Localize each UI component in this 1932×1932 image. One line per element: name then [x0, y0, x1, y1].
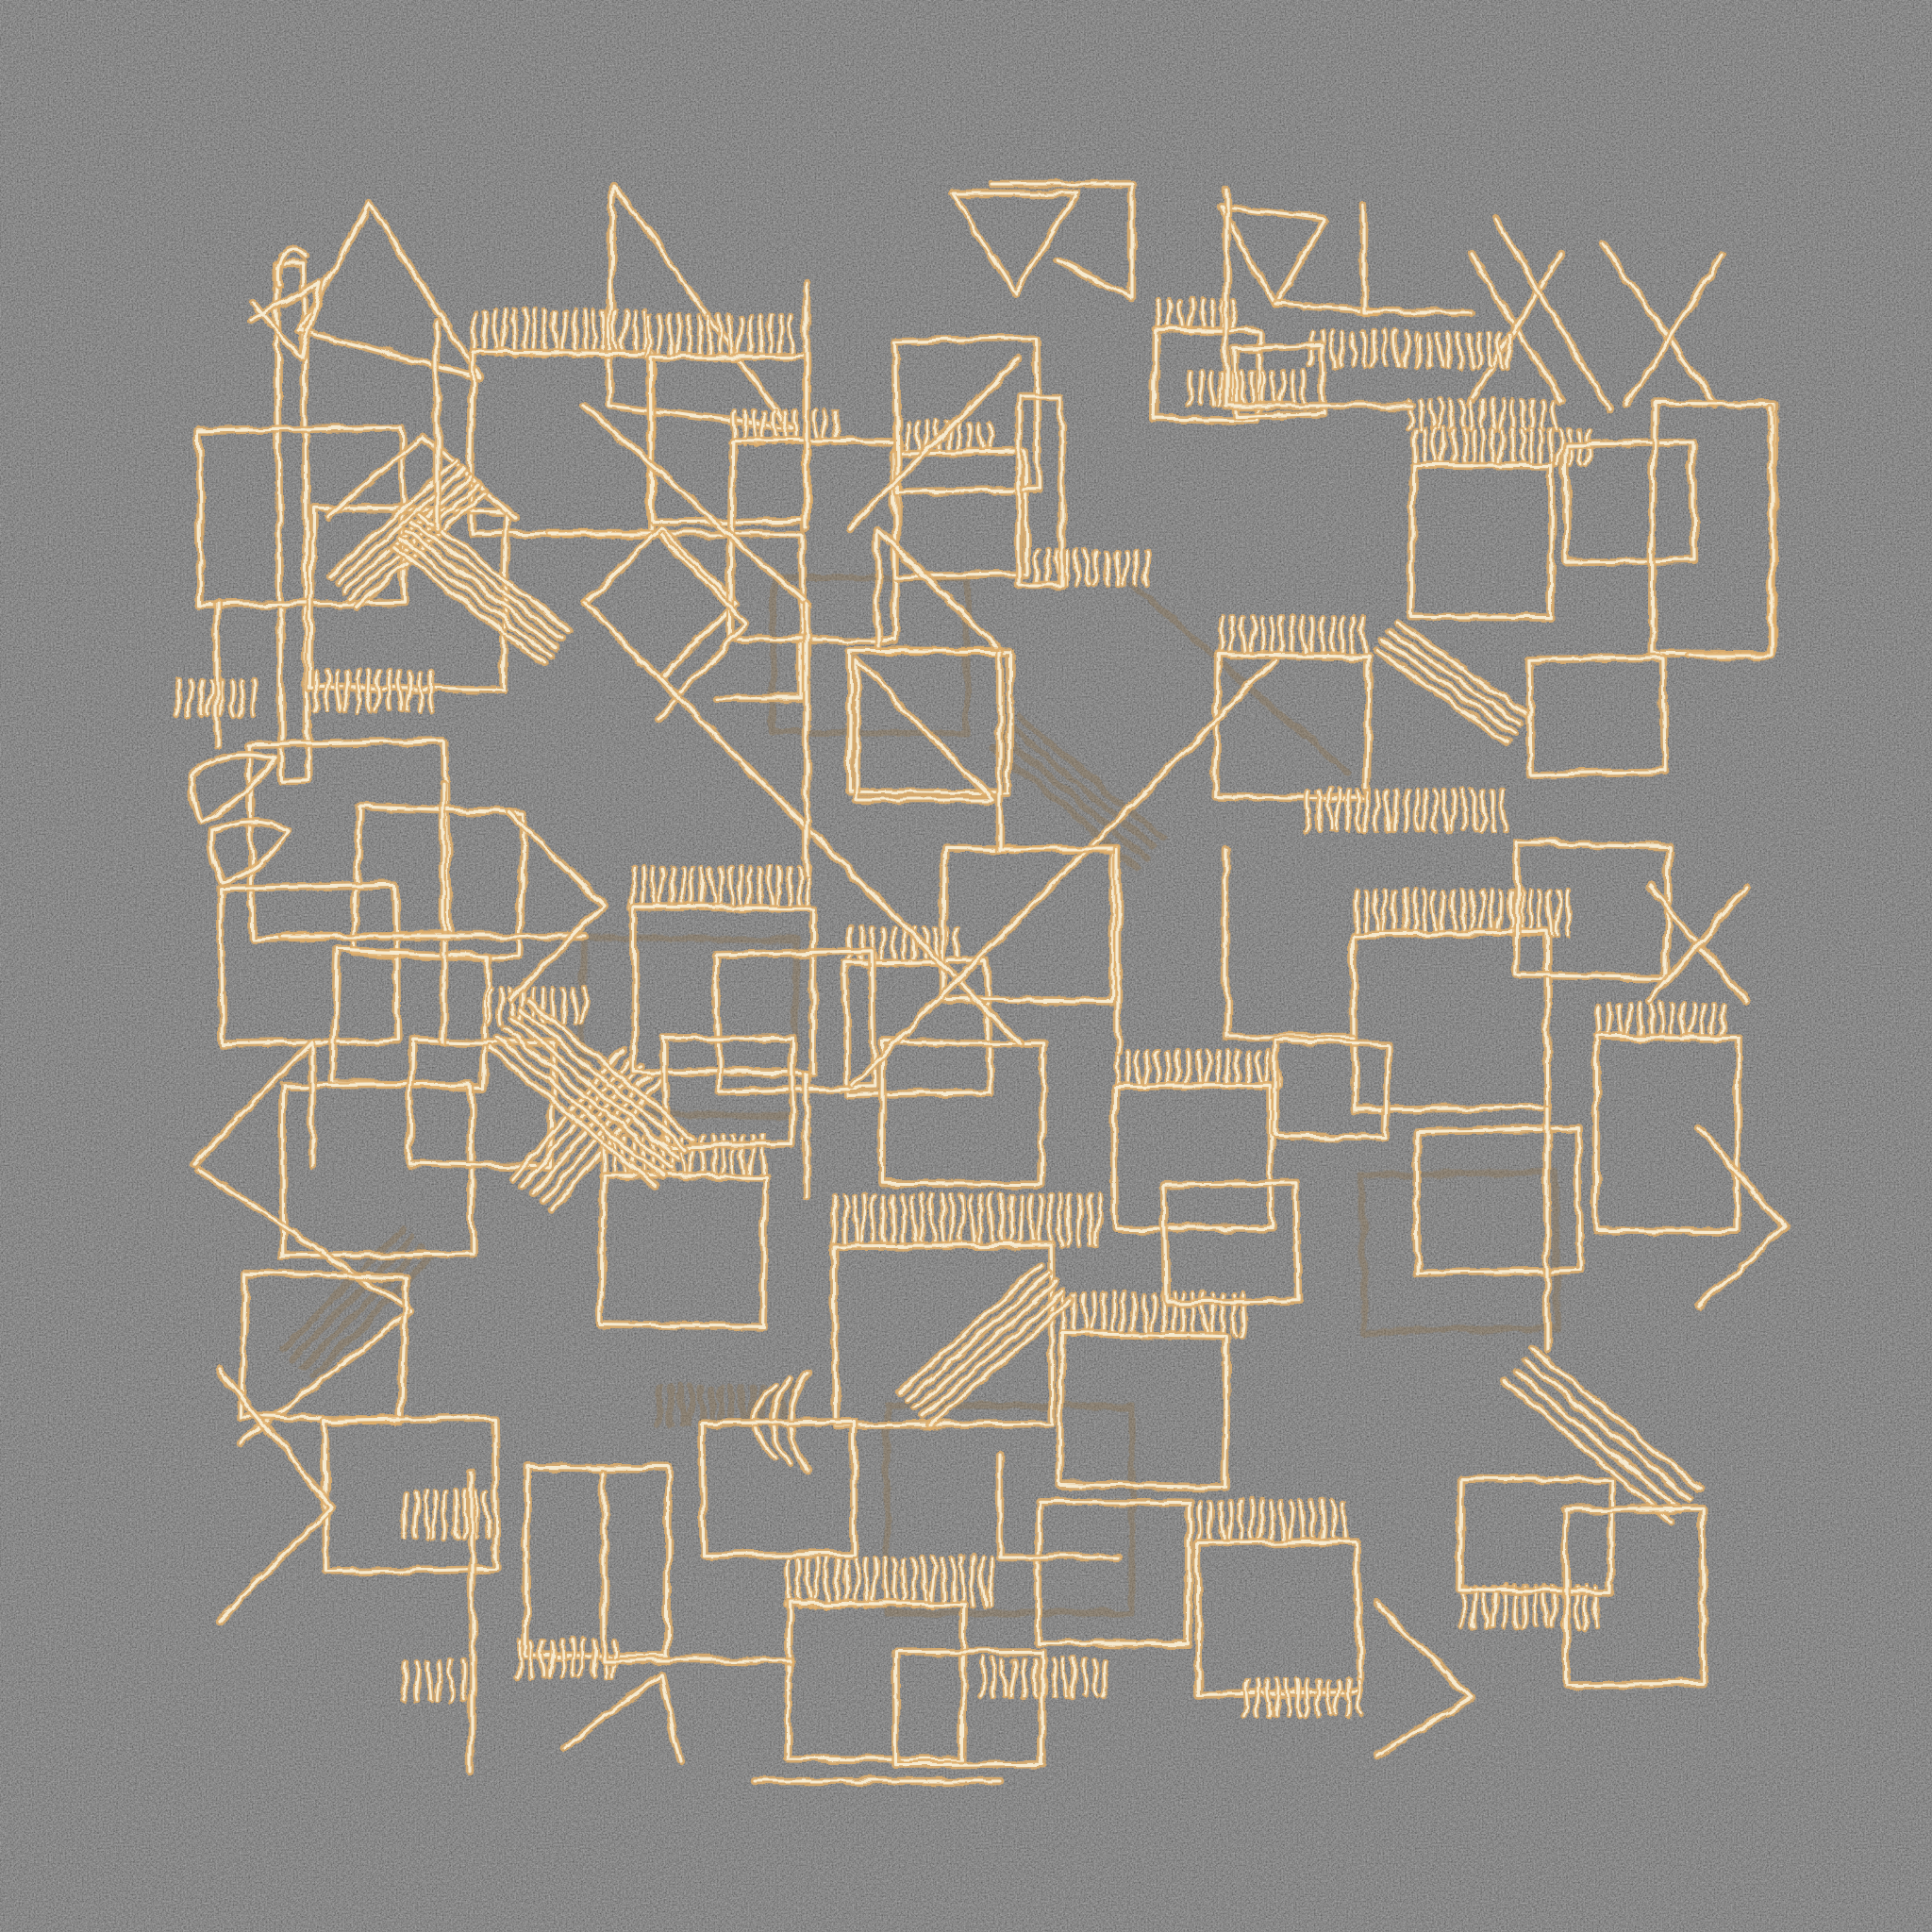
abstract-line-art-svg [0, 0, 1932, 1932]
artwork-canvas [0, 0, 1932, 1932]
